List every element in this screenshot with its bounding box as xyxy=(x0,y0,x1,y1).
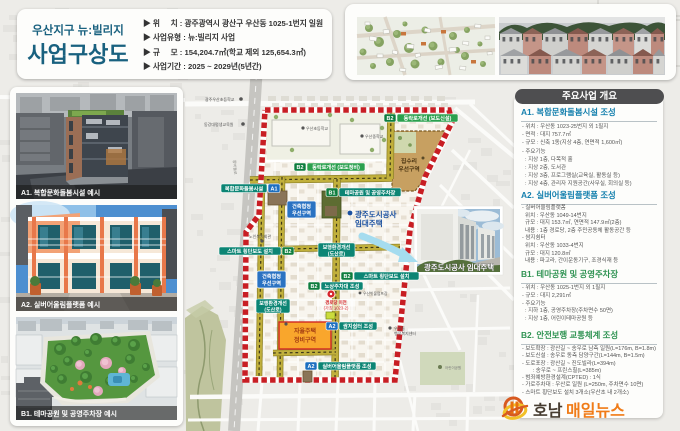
svg-text:실버어울림플랫폼 조성: 실버어울림플랫폼 조성 xyxy=(322,362,371,370)
svg-text:B2: B2 xyxy=(311,284,318,290)
svg-text:복합문화돌봄시설: 복합문화돌봄시설 xyxy=(225,185,263,193)
svg-text:동강대평생교육원: 동강대평생교육원 xyxy=(204,121,234,127)
svg-text:B2: B2 xyxy=(344,274,351,280)
svg-text:쌈지쉼터 조성: 쌈지쉼터 조성 xyxy=(343,322,373,330)
svg-text:(도산로): (도산로) xyxy=(328,251,345,258)
svg-text:건축협정: 건축협정 xyxy=(292,202,311,210)
svg-text:우선구역: 우선구역 xyxy=(292,209,311,217)
svg-text:자율주택: 자율주택 xyxy=(294,327,316,335)
svg-text:우산초등학교: 우산초등학교 xyxy=(306,125,328,131)
svg-text:B2: B2 xyxy=(285,249,292,255)
svg-text:우선구역: 우선구역 xyxy=(398,165,419,173)
svg-text:집수리: 집수리 xyxy=(401,157,417,165)
svg-text:우산중학교: 우산중학교 xyxy=(365,133,384,139)
svg-text:A1: A1 xyxy=(271,187,278,193)
svg-text:어린이공원: 어린이공원 xyxy=(445,365,461,370)
svg-text:우산빗물펌프장: 우산빗물펌프장 xyxy=(363,291,388,296)
svg-text:광주도시공사: 광주도시공사 xyxy=(355,209,396,219)
svg-text:(가칭 1023-2): (가칭 1023-2) xyxy=(324,305,349,312)
svg-text:B2: B2 xyxy=(297,165,304,171)
svg-text:보행환경개선: 보행환경개선 xyxy=(323,244,351,251)
svg-text:(도산로): (도산로) xyxy=(264,307,281,314)
svg-text:A2. 실버어울림플랫폼 예시: A2. 실버어울림플랫폼 예시 xyxy=(21,300,100,309)
svg-text:테마공원 및 공영주차장: 테마공원 및 공영주차장 xyxy=(345,189,396,197)
svg-text:스마트 횡단보도 설치: 스마트 횡단보도 설치 xyxy=(364,272,410,280)
svg-text:매일뉴스: 매일뉴스 xyxy=(566,402,625,420)
svg-text:A2: A2 xyxy=(308,364,315,370)
svg-text:동락로개선 (보도신설): 동락로개선 (보도신설) xyxy=(404,114,452,122)
svg-text:건축협정: 건축협정 xyxy=(262,272,281,280)
svg-text:정비구역: 정비구역 xyxy=(294,336,316,344)
svg-text:왕버들로: 왕버들로 xyxy=(232,160,239,175)
svg-text:행정복지센터: 행정복지센터 xyxy=(394,330,416,336)
svg-text:동락로개선 (보도정비): 동락로개선 (보도정비) xyxy=(312,163,360,171)
svg-text:광주우산초등학교: 광주우산초등학교 xyxy=(205,96,235,102)
svg-text:A1. 복합문화돌봄시설 예시: A1. 복합문화돌봄시설 예시 xyxy=(21,188,100,197)
svg-text:노인복지회관: 노인복지회관 xyxy=(249,233,271,239)
svg-text:보행환경개선: 보행환경개선 xyxy=(259,300,287,307)
svg-text:A2: A2 xyxy=(329,324,336,330)
svg-text:우선구역: 우선구역 xyxy=(262,279,281,287)
svg-text:노상주차대 조성: 노상주차대 조성 xyxy=(325,282,360,290)
svg-text:B2: B2 xyxy=(387,116,394,122)
svg-text:호남: 호남 xyxy=(533,402,563,420)
svg-text:임대주택: 임대주택 xyxy=(355,218,383,228)
svg-text:스마트 횡단보도 설치: 스마트 횡단보도 설치 xyxy=(227,247,273,255)
svg-text:B1: B1 xyxy=(329,191,336,197)
svg-text:광주도시공사 임대주택: 광주도시공사 임대주택 xyxy=(424,263,494,272)
svg-text:B1. 테마공원 및 공영주차장 예시: B1. 테마공원 및 공영주차장 예시 xyxy=(21,409,117,418)
